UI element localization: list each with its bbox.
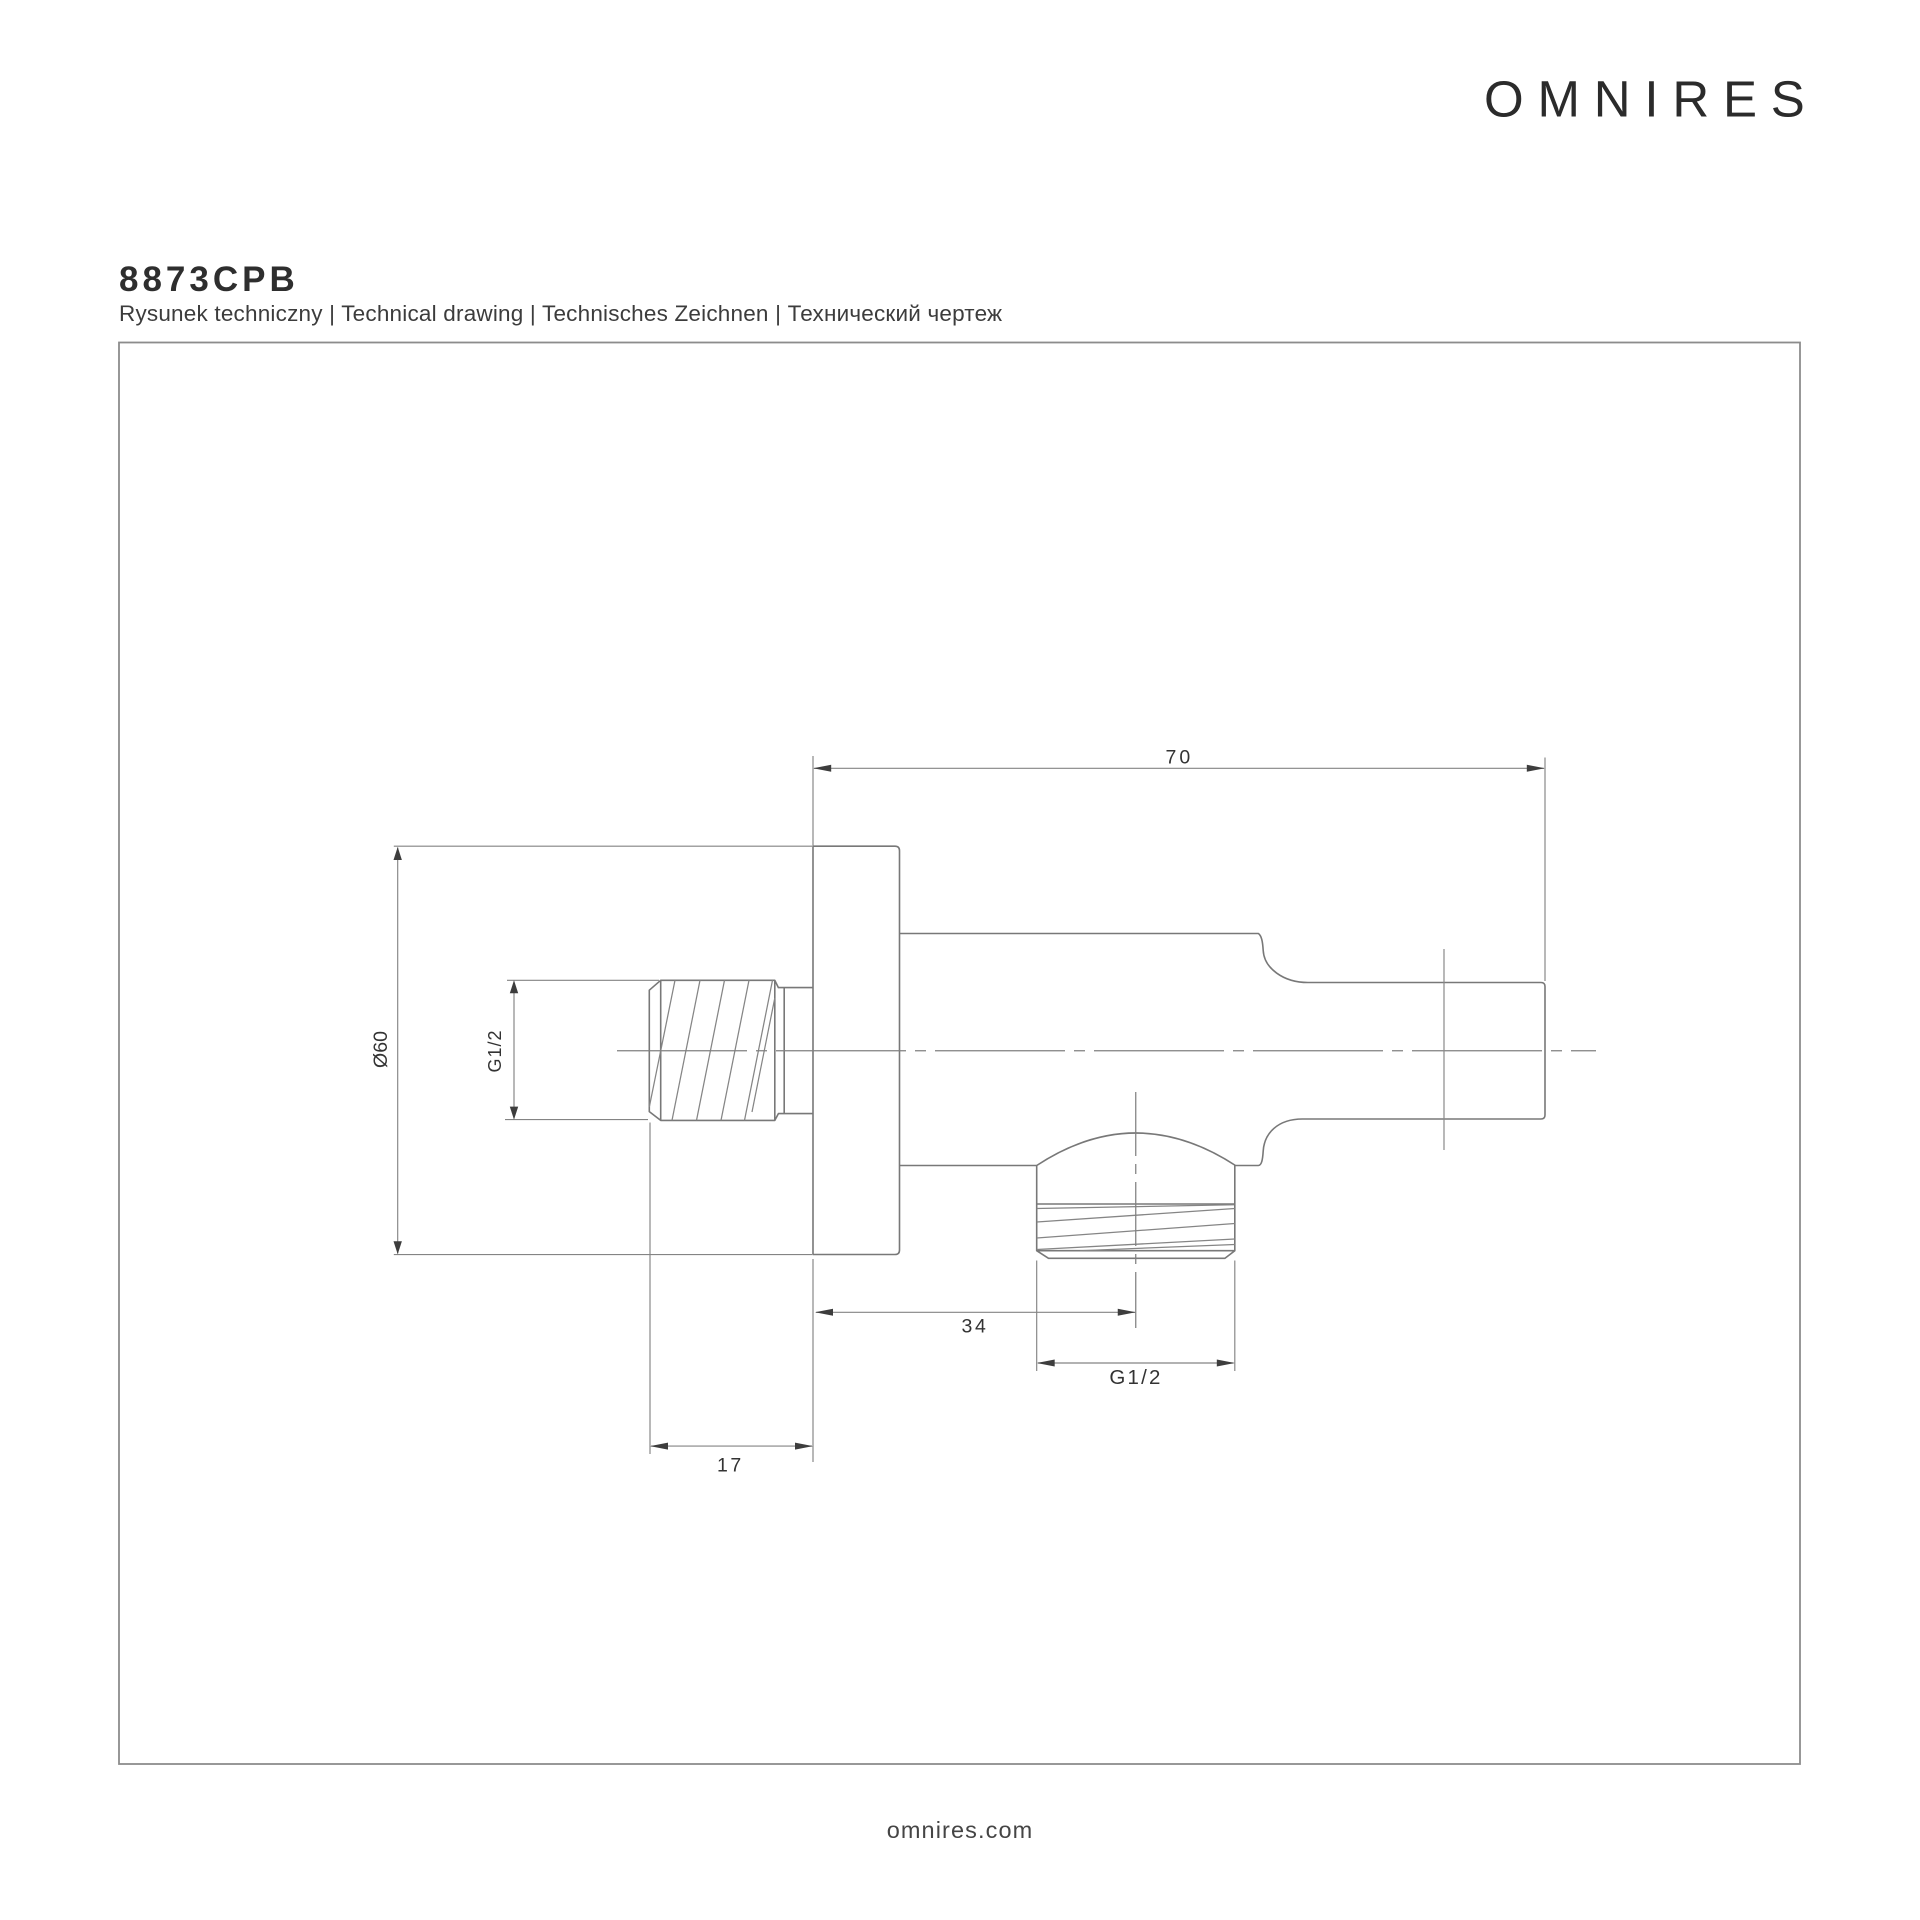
svg-text:OMNIRES: OMNIRES xyxy=(1484,71,1819,128)
svg-text:Rysunek techniczny | Technical: Rysunek techniczny | Technical drawing |… xyxy=(119,301,1002,326)
svg-text:34: 34 xyxy=(962,1316,989,1338)
svg-text:Ø60: Ø60 xyxy=(370,1031,392,1068)
svg-text:G1/2: G1/2 xyxy=(485,1029,505,1072)
svg-text:70: 70 xyxy=(1166,747,1194,769)
svg-text:G1/2: G1/2 xyxy=(1109,1366,1162,1389)
svg-text:8873CPB: 8873CPB xyxy=(119,260,299,299)
svg-text:omnires.com: omnires.com xyxy=(887,1817,1034,1843)
svg-text:17: 17 xyxy=(717,1455,744,1477)
